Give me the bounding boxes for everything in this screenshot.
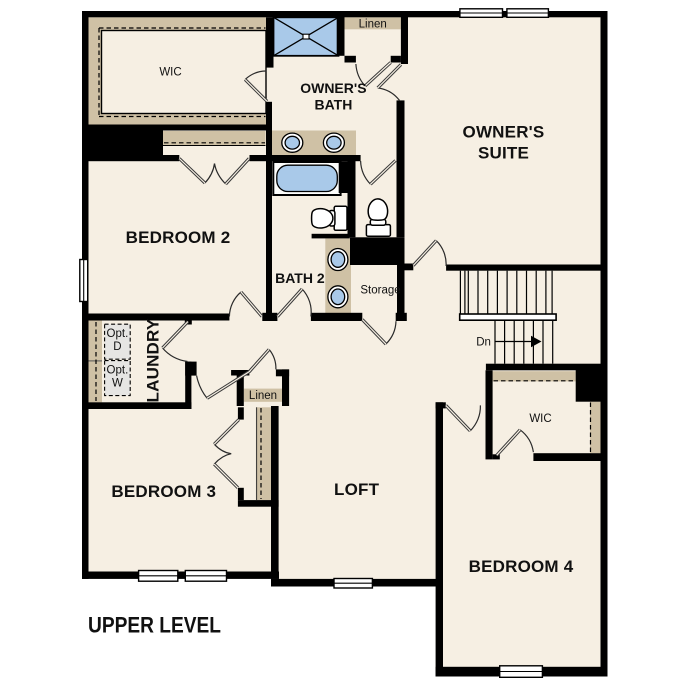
svg-text:BEDROOM 4: BEDROOM 4	[469, 557, 574, 576]
svg-text:BEDROOM 3: BEDROOM 3	[111, 482, 216, 501]
svg-text:D: D	[113, 341, 121, 353]
svg-text:WIC: WIC	[159, 67, 181, 79]
svg-text:Opt.: Opt.	[107, 365, 129, 377]
svg-text:OWNER'S: OWNER'S	[463, 123, 545, 142]
svg-text:SUITE: SUITE	[478, 144, 529, 163]
svg-text:LOFT: LOFT	[334, 480, 380, 499]
svg-text:UPPER LEVEL: UPPER LEVEL	[88, 613, 221, 638]
svg-text:LAUNDRY: LAUNDRY	[144, 318, 163, 402]
svg-text:Linen: Linen	[359, 18, 387, 30]
svg-text:Linen: Linen	[249, 390, 277, 402]
svg-text:W: W	[112, 378, 123, 390]
svg-text:OWNER'S: OWNER'S	[300, 80, 366, 96]
svg-text:Opt.: Opt.	[107, 328, 129, 340]
svg-text:BATH 2: BATH 2	[275, 270, 325, 286]
svg-text:Dn: Dn	[476, 337, 491, 349]
svg-text:BEDROOM 2: BEDROOM 2	[126, 228, 231, 247]
svg-text:WIC: WIC	[529, 413, 551, 425]
svg-text:Storage: Storage	[360, 284, 400, 296]
svg-text:BATH: BATH	[314, 97, 352, 113]
